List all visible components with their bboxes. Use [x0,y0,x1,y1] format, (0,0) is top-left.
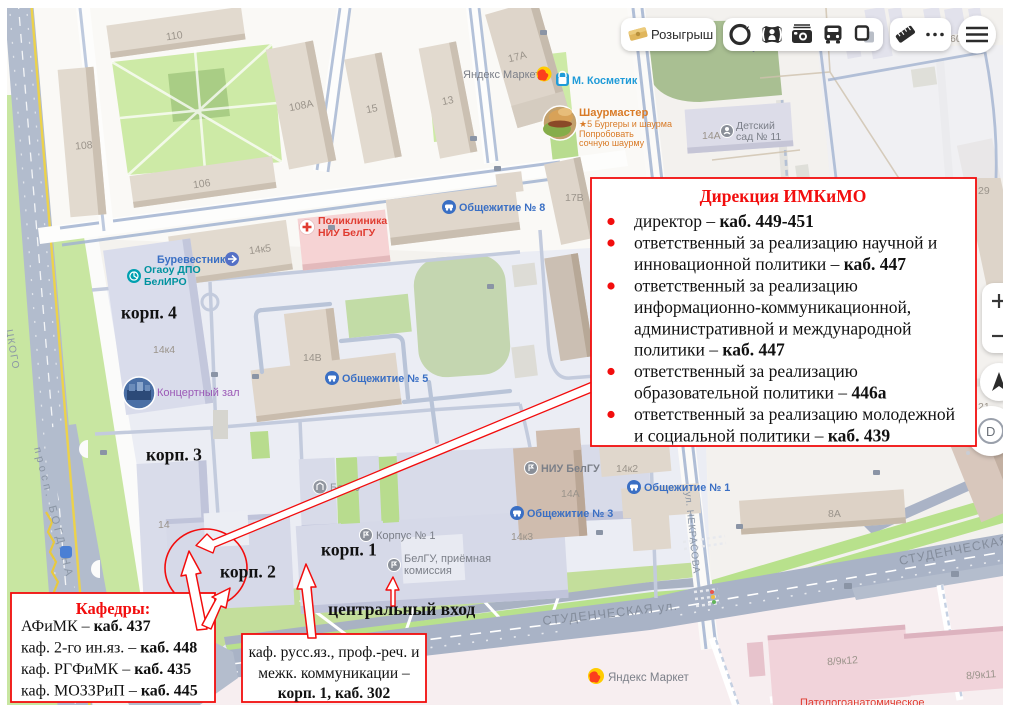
svg-text:14В: 14В [303,352,322,364]
svg-text:информационно-коммуникационной: информационно-коммуникационной, [634,297,911,317]
svg-text:8/9к12: 8/9к12 [827,654,859,668]
svg-text:АФиМК – каб. 437: АФиМК – каб. 437 [21,618,151,635]
svg-text:директор – каб. 449-451: директор – каб. 449-451 [634,211,814,231]
svg-text:корп. 2: корп. 2 [220,562,276,582]
svg-text:ответственный за реализацию мо: ответственный за реализацию молодежной [634,404,955,424]
svg-text:Кафедры:: Кафедры: [76,599,150,618]
svg-text:инновационной политики – каб.: инновационной политики – каб. 447 [634,254,906,274]
svg-text:корп. 3: корп. 3 [146,445,202,465]
svg-text:каф. МОЗЗРиП – каб. 445: каф. МОЗЗРиП – каб. 445 [21,683,198,700]
svg-text:сад № 11: сад № 11 [736,131,781,143]
svg-text:Корпус № 1: Корпус № 1 [376,530,436,542]
svg-text:НИУ БелГУ: НИУ БелГУ [318,227,376,239]
svg-text:13: 13 [441,94,455,108]
svg-text:БелИРО: БелИРО [144,276,187,288]
svg-text:каф. русс.яз., проф.-реч. и: каф. русс.яз., проф.-реч. и [249,644,420,661]
svg-text:центральный вход: центральный вход [328,599,475,619]
svg-text:108: 108 [75,139,94,152]
svg-text:Розыгрыш: Розыгрыш [651,27,713,42]
svg-text:14: 14 [158,519,170,531]
svg-text:8А: 8А [828,508,841,520]
svg-text:29: 29 [978,185,990,197]
svg-text:Патологоанатомическое: Патологоанатомическое [800,697,924,709]
svg-text:административной и международн: административной и международной [634,319,912,339]
svg-text:корп. 1, каб. 302: корп. 1, каб. 302 [278,685,391,702]
svg-text:каф. 2-го ин.яз. – каб. 448: каф. 2-го ин.яз. – каб. 448 [21,640,197,657]
svg-text:образовательной политики – 446: образовательной политики – 446а [634,383,887,403]
svg-text:Общежитие № 1: Общежитие № 1 [644,482,730,494]
svg-text:14к3: 14к3 [511,531,533,543]
svg-text:Общежитие № 5: Общежитие № 5 [342,373,428,385]
svg-text:межк. коммуникации –: межк. коммуникации – [258,665,410,682]
svg-text:Яндекс Маркет: Яндекс Маркет [608,672,690,684]
svg-text:Огаоу ДПО: Огаоу ДПО [144,264,201,276]
svg-text:106: 106 [192,177,211,191]
svg-text:15: 15 [365,102,379,116]
svg-text:ответственный за реализацию: ответственный за реализацию [634,361,858,381]
svg-text:8/9к11: 8/9к11 [966,668,997,682]
svg-text:Концертный зал: Концертный зал [157,387,240,399]
svg-text:14к4: 14к4 [153,344,175,356]
svg-text:и социальной политики – каб. 4: и социальной политики – каб. 439 [634,426,890,446]
svg-text:БелГУ, приёмная: БелГУ, приёмная [404,553,491,565]
svg-text:14к2: 14к2 [616,463,638,475]
svg-text:каф. РГФиМК – каб. 435: каф. РГФиМК – каб. 435 [21,661,191,678]
svg-text:корп. 1: корп. 1 [321,540,377,560]
svg-text:★5 Бургеры и шаурма: ★5 Бургеры и шаурма [579,119,672,129]
svg-text:корп. 4: корп. 4 [121,303,177,323]
svg-text:НИУ БелГУ: НИУ БелГУ [541,463,600,475]
svg-text:14А: 14А [561,488,580,500]
svg-text:Общежитие № 3: Общежитие № 3 [527,508,613,520]
svg-text:Яндекс Маркет: Яндекс Маркет [463,69,540,81]
svg-text:Общежитие № 8: Общежитие № 8 [459,202,545,214]
svg-text:комиссия: комиссия [404,565,452,577]
svg-text:14А: 14А [702,130,721,142]
svg-text:17В: 17В [565,192,584,204]
svg-text:сочную шаурму: сочную шаурму [579,138,645,148]
svg-text:М. Косметик: М. Косметик [572,75,638,87]
svg-text:D: D [986,424,995,439]
svg-text:ответственный за реализацию на: ответственный за реализацию научной и [634,233,937,253]
svg-text:Дирекция ИМКиМО: Дирекция ИМКиМО [700,186,867,206]
svg-text:110: 110 [165,29,183,43]
svg-text:политики – каб. 447: политики – каб. 447 [634,340,785,360]
svg-text:ответственный за реализацию: ответственный за реализацию [634,276,858,296]
svg-text:Шаурмастер: Шаурмастер [579,107,648,119]
